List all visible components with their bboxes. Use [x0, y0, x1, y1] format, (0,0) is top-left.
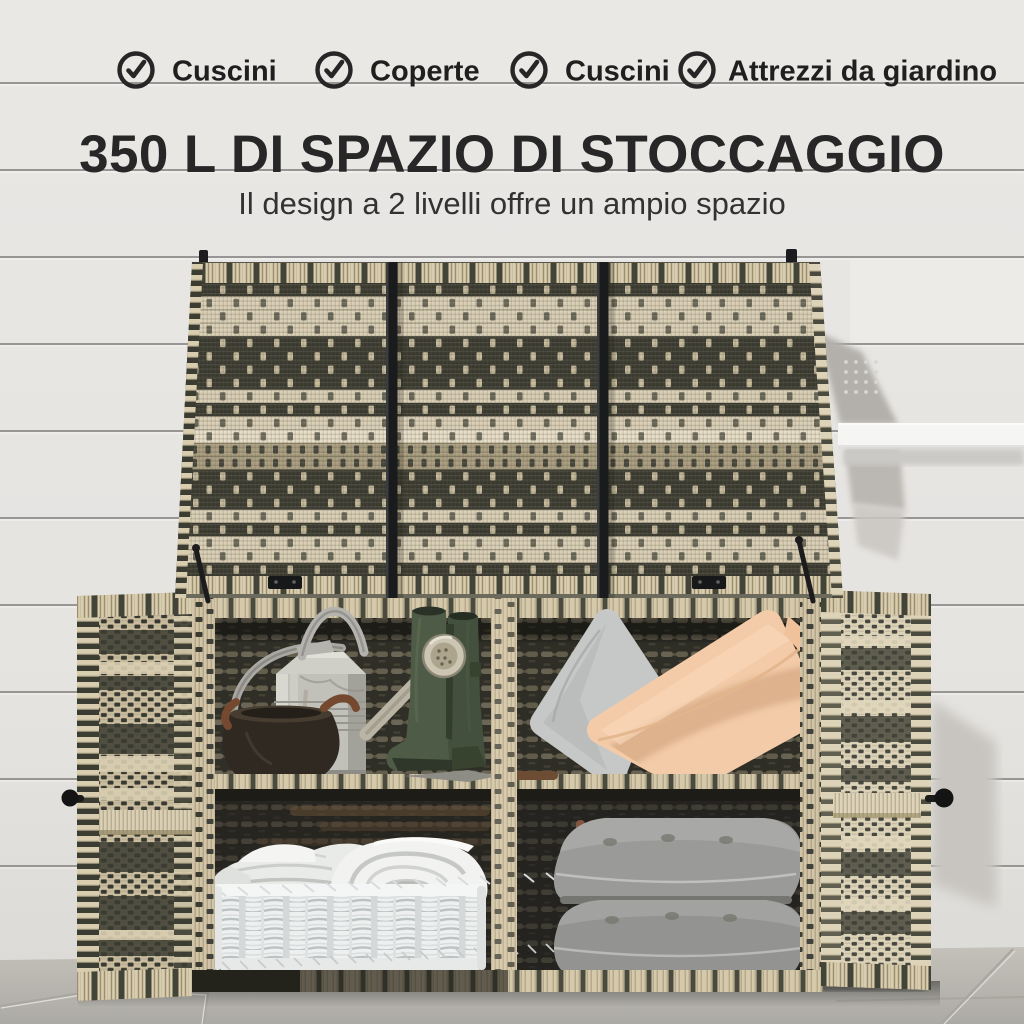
svg-text:Cuscini: Cuscini	[172, 56, 277, 88]
svg-text:350 L DI SPAZIO DI STOCCAGGIO: 350 L DI SPAZIO DI STOCCAGGIO	[79, 125, 945, 184]
svg-text:Coperte: Coperte	[370, 56, 480, 88]
svg-text:Attrezzi da giardino: Attrezzi da giardino	[728, 56, 997, 88]
svg-text:Cuscini: Cuscini	[565, 56, 670, 88]
svg-text:Il design a 2 livelli offre un: Il design a 2 livelli offre un ampio spa…	[238, 186, 785, 221]
